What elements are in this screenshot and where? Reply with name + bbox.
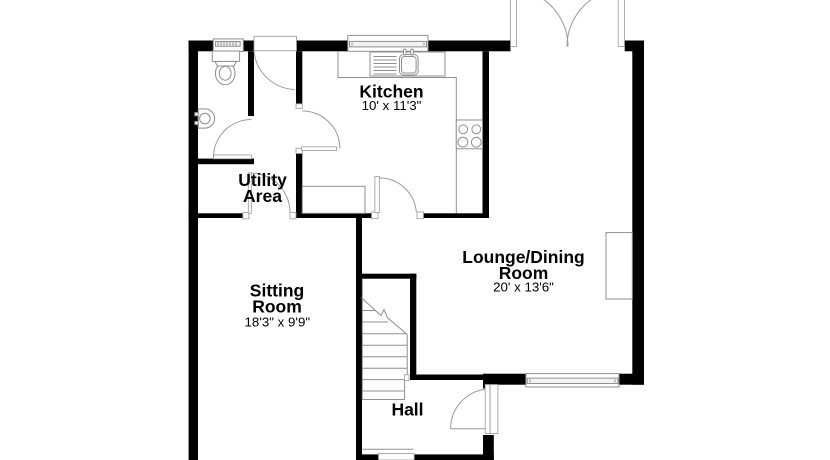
svg-text:Hall: Hall bbox=[391, 400, 423, 420]
svg-text:18'3" x 9'9": 18'3" x 9'9" bbox=[245, 315, 311, 330]
svg-text:Area: Area bbox=[243, 186, 282, 206]
svg-text:Room: Room bbox=[252, 297, 302, 317]
svg-text:20' x 13'6": 20' x 13'6" bbox=[493, 280, 554, 295]
svg-text:10' x 11'3": 10' x 11'3" bbox=[362, 98, 422, 113]
